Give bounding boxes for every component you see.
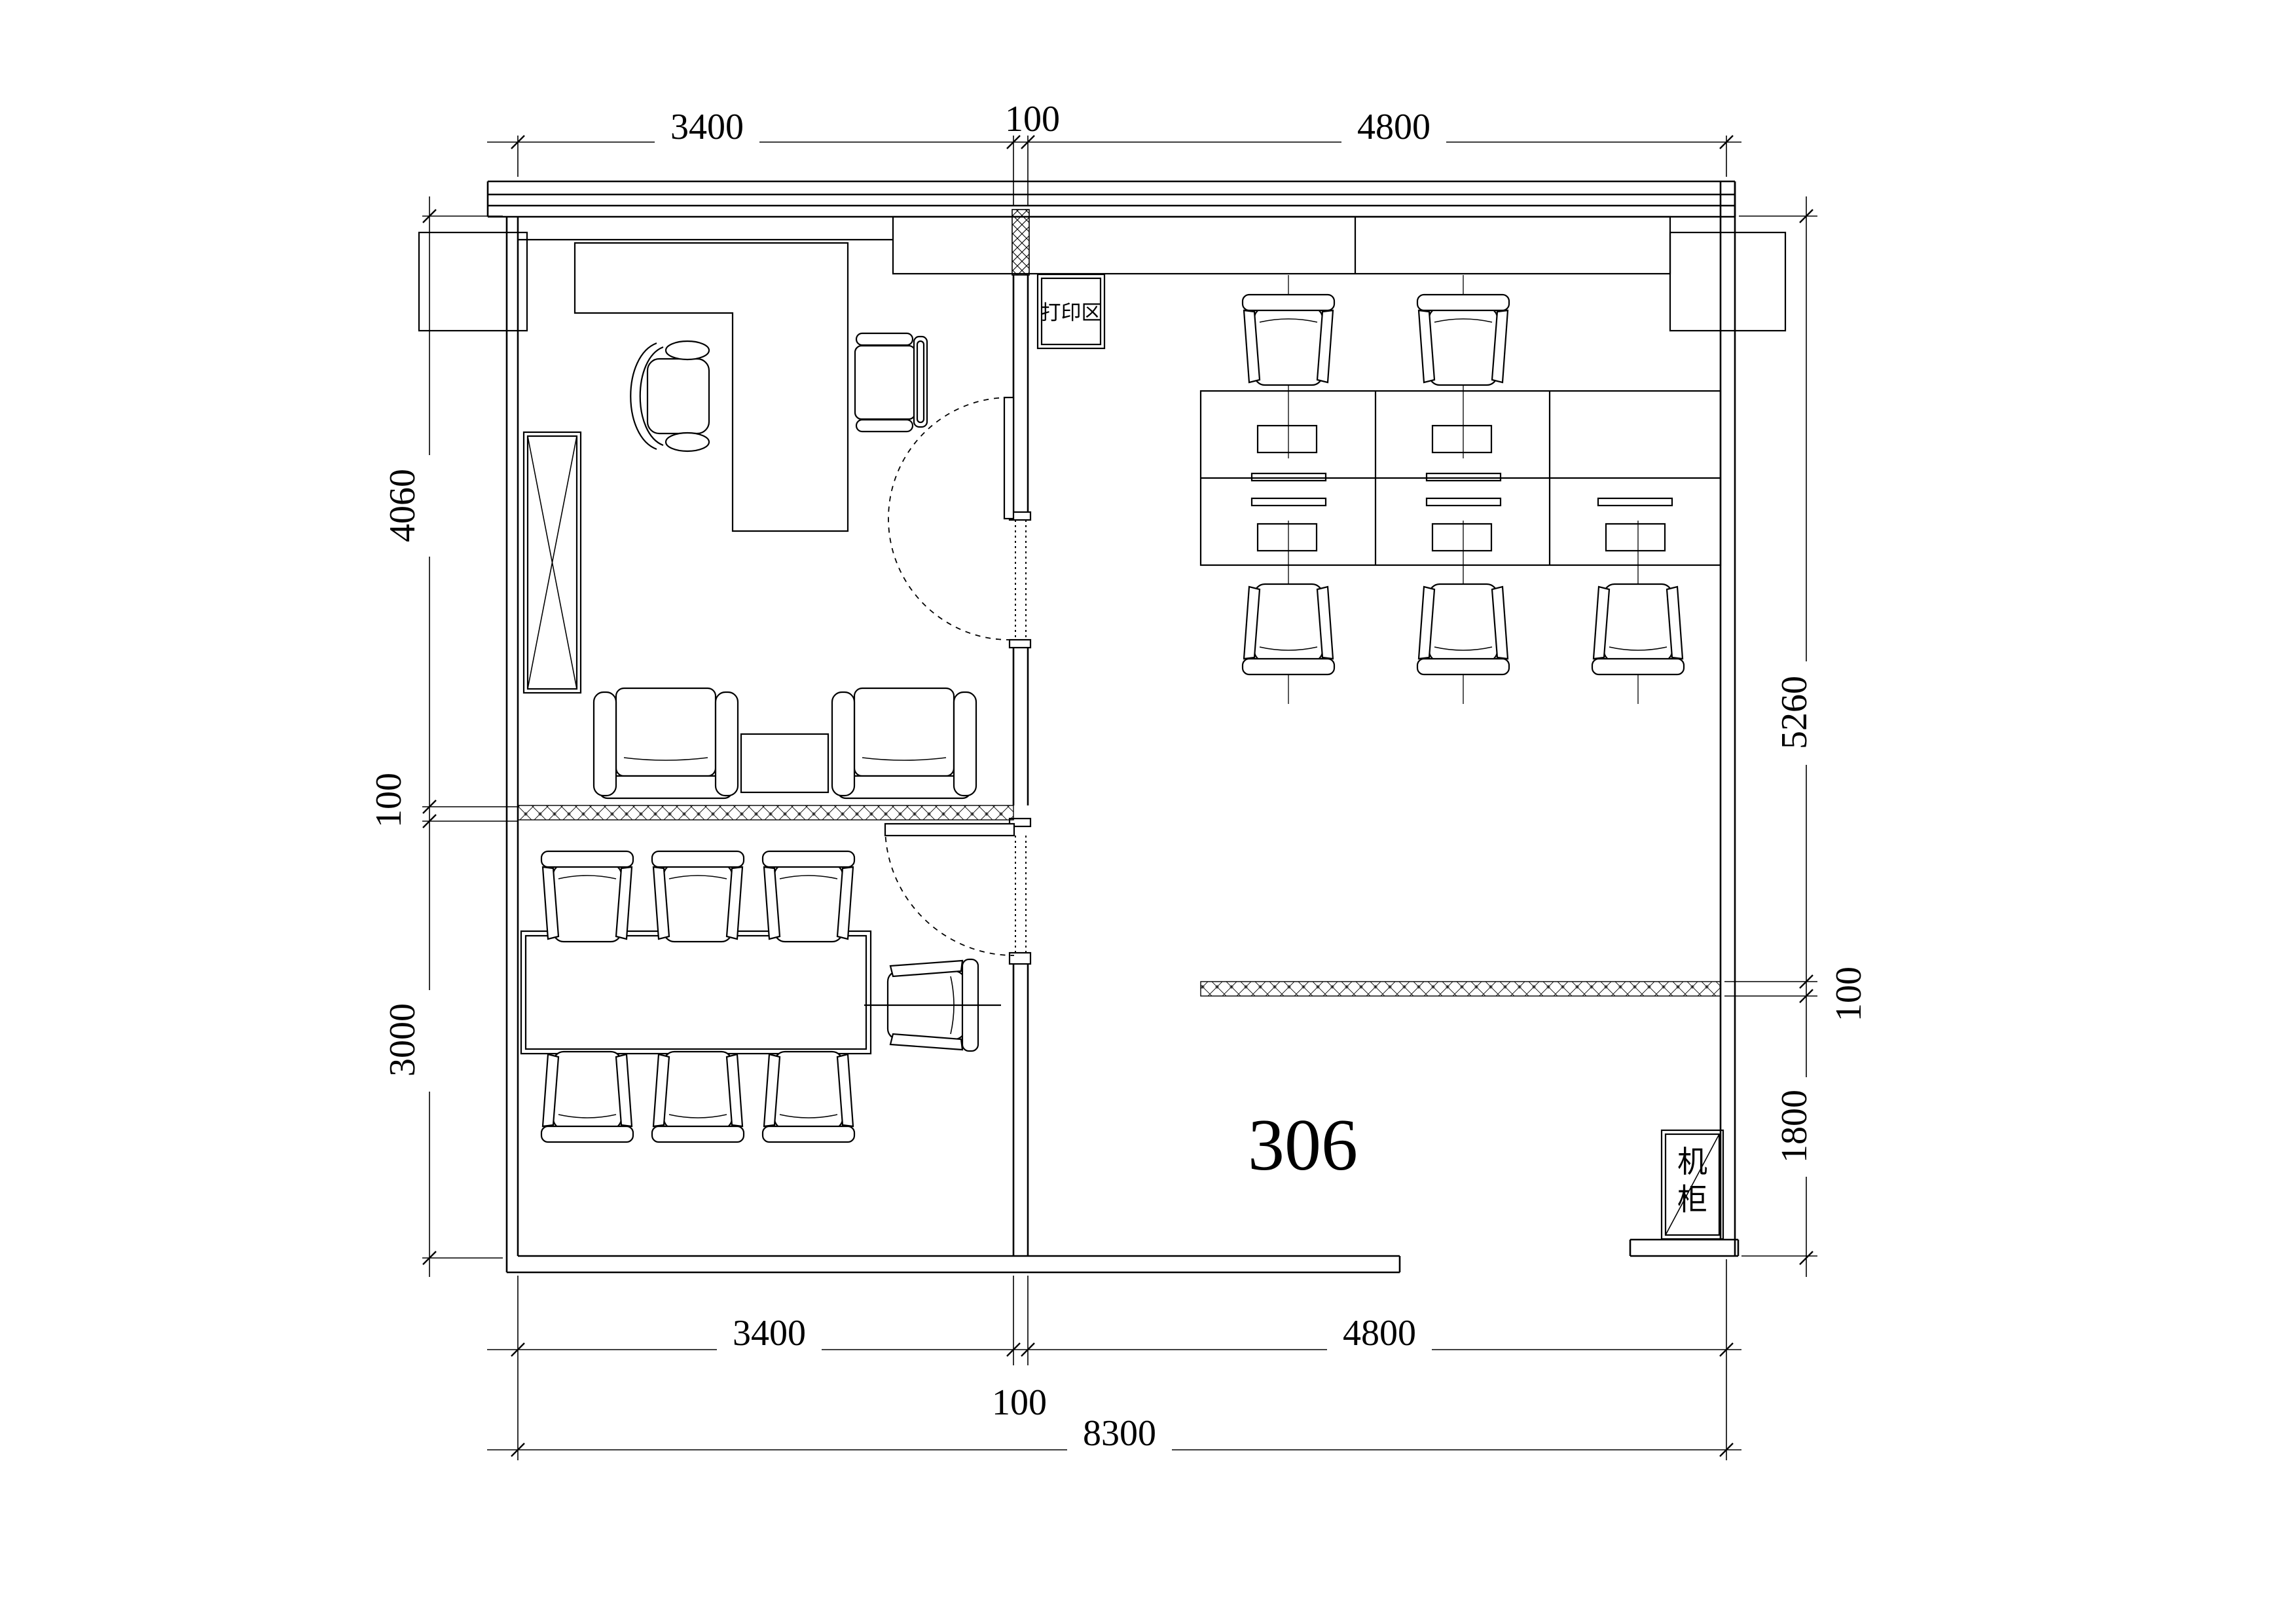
dim-bottom-4800: 4800 [1343, 1313, 1416, 1354]
task-chair-bottom-3 [1592, 584, 1684, 674]
meeting-chair-top-3 [763, 851, 854, 942]
floor-plan-page: 打印区 机柜 306 3400 100 4800 4060 100 3000 [0, 0, 2296, 1624]
floor-plan-drawing: 打印区 机柜 306 3400 100 4800 4060 100 3000 [0, 0, 2296, 1624]
print-area-label: 打印区 [1041, 301, 1102, 324]
task-chair-top-1 [1243, 295, 1334, 385]
task-chair-bottom-2 [1417, 584, 1509, 674]
task-chair-top-2 [1417, 295, 1509, 385]
meeting-chair-top-2 [652, 851, 744, 942]
meeting-chair-bottom-3 [763, 1052, 854, 1142]
guest-chair [855, 333, 927, 432]
dim-left-100: 100 [369, 773, 409, 828]
dim-top-100: 100 [1005, 99, 1060, 139]
dim-bottom-100: 100 [992, 1382, 1047, 1423]
meeting-chair-top-1 [541, 851, 633, 942]
low-partition-right [1201, 982, 1721, 996]
dim-bottom-3400: 3400 [733, 1313, 806, 1354]
meeting-table [521, 931, 871, 1054]
dim-top-4800: 4800 [1357, 107, 1430, 147]
sofa-side-table [741, 734, 828, 792]
sofa-2 [832, 688, 976, 798]
dim-right-5260: 5260 [1774, 676, 1815, 749]
low-partition-left [518, 805, 1013, 820]
meeting-chair-bottom-1 [541, 1052, 633, 1142]
dim-top-3400: 3400 [670, 107, 744, 147]
dim-bottom-8300: 8300 [1083, 1413, 1156, 1454]
dim-left-3000: 3000 [382, 1003, 423, 1077]
dim-right-1800: 1800 [1774, 1090, 1815, 1163]
dim-right-100: 100 [1829, 967, 1869, 1022]
dim-left-4060: 4060 [382, 469, 423, 542]
sofa-1 [594, 688, 738, 798]
room-number: 306 [1248, 1105, 1358, 1186]
task-chair-bottom-1 [1243, 584, 1334, 674]
meeting-chair-bottom-2 [652, 1052, 744, 1142]
paper-background [0, 0, 2296, 1624]
